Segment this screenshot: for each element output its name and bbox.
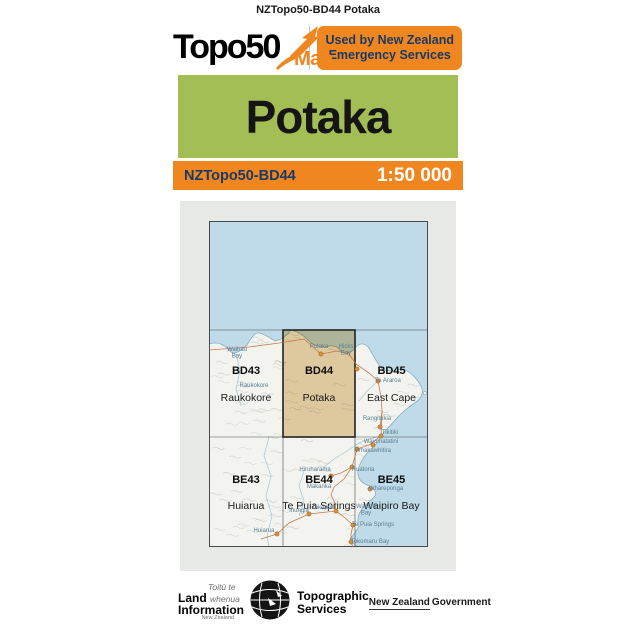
sheet-name-bd45: East Cape [366,392,415,404]
linz-new-zealand: New Zealand [178,616,244,622]
topo50-map-logo: Topo50 Map [178,22,305,74]
place-label: Rangitukia [362,416,391,422]
topographic-line-2: Services [297,603,369,616]
sheet-label-bd43: BD43 [231,365,259,377]
map-wordmark: Map [294,48,333,71]
place-label: Bay [340,350,350,356]
map-scale: 1:50 000 [377,165,452,187]
place-label: Whareponga [368,486,403,492]
index-map-svg: BD43RaukokoreBD44PotakaBD45East CapeBE43… [209,221,428,547]
title-band: Potaka [178,75,458,158]
place-label: Hiruharama [299,467,331,473]
place-label: Te Puia Springs [351,522,393,528]
map-title: Potaka [246,90,391,144]
sheet-label-be45: BE45 [377,474,405,486]
place-label: Waihau [226,347,246,353]
sheet-name-be43: Huiarua [227,500,264,512]
badge-line-1: Used by New Zealand [325,33,454,48]
index-map-panel: BD43RaukokoreBD44PotakaBD45East CapeBE43… [180,201,456,571]
topographic-line-1: Topographic [297,590,369,603]
place-label: Takapau [311,505,334,511]
scale-band: NZTopo50-BD44 1:50 000 [173,161,463,190]
linz-globe-icon [248,580,292,625]
topo50-wordmark: Topo50 [173,22,279,72]
map-cover: Topo50 Map Used by New Zealand Emergency… [178,21,458,625]
place-label: Makarika [306,484,331,490]
place-label: Ruatoria [351,467,374,473]
emergency-services-badge: Used by New Zealand Emergency Services [317,26,462,70]
place-label: Waipiro [355,504,376,510]
sheet-code: NZTopo50-BD44 [184,168,296,184]
place-label: Hicks [338,344,353,350]
place-label: Potaka [309,344,328,350]
sheet-name-bd44: Potaka [302,392,335,404]
place-label: Raukokore [239,383,269,389]
place-label: Waiomatatini [363,439,397,445]
nz-government-logo: New ZealandGovernment [369,597,491,608]
sheet-label-bd44: BD44 [304,365,333,377]
topographic-services-logo: Topographic Services [297,590,369,615]
sheet-name-bd43: Raukokore [220,392,271,404]
place-label: Whakawhitira [354,448,391,454]
place-label: Ihungia [289,508,309,514]
nz-government-rest: Government [432,597,491,608]
nz-government-underlined: New Zealand [369,597,430,610]
brand-row: Topo50 Map Used by New Zealand Emergency… [178,21,458,75]
place-label: Huiarua [253,528,275,534]
index-map: BD43RaukokoreBD44PotakaBD45East CapeBE43… [209,221,428,547]
sheet-reference-title: NZTopo50-BD44 Potaka [0,0,636,20]
place-label: Te Araroa [375,378,401,384]
sheet-label-bd45: BD45 [377,365,405,377]
place-label: Tikitiki [381,430,397,436]
footer-logos: Toitū te Land whenua Information New Zea… [178,580,462,625]
badge-line-2: Emergency Services [325,48,454,63]
place-label: Tokomaru Bay [350,539,388,545]
sheet-label-be43: BE43 [232,474,260,486]
place-label: Bay [231,353,241,359]
linz-logo: Toitū te Land whenua Information New Zea… [178,583,244,622]
place-label: Bay [360,510,370,516]
